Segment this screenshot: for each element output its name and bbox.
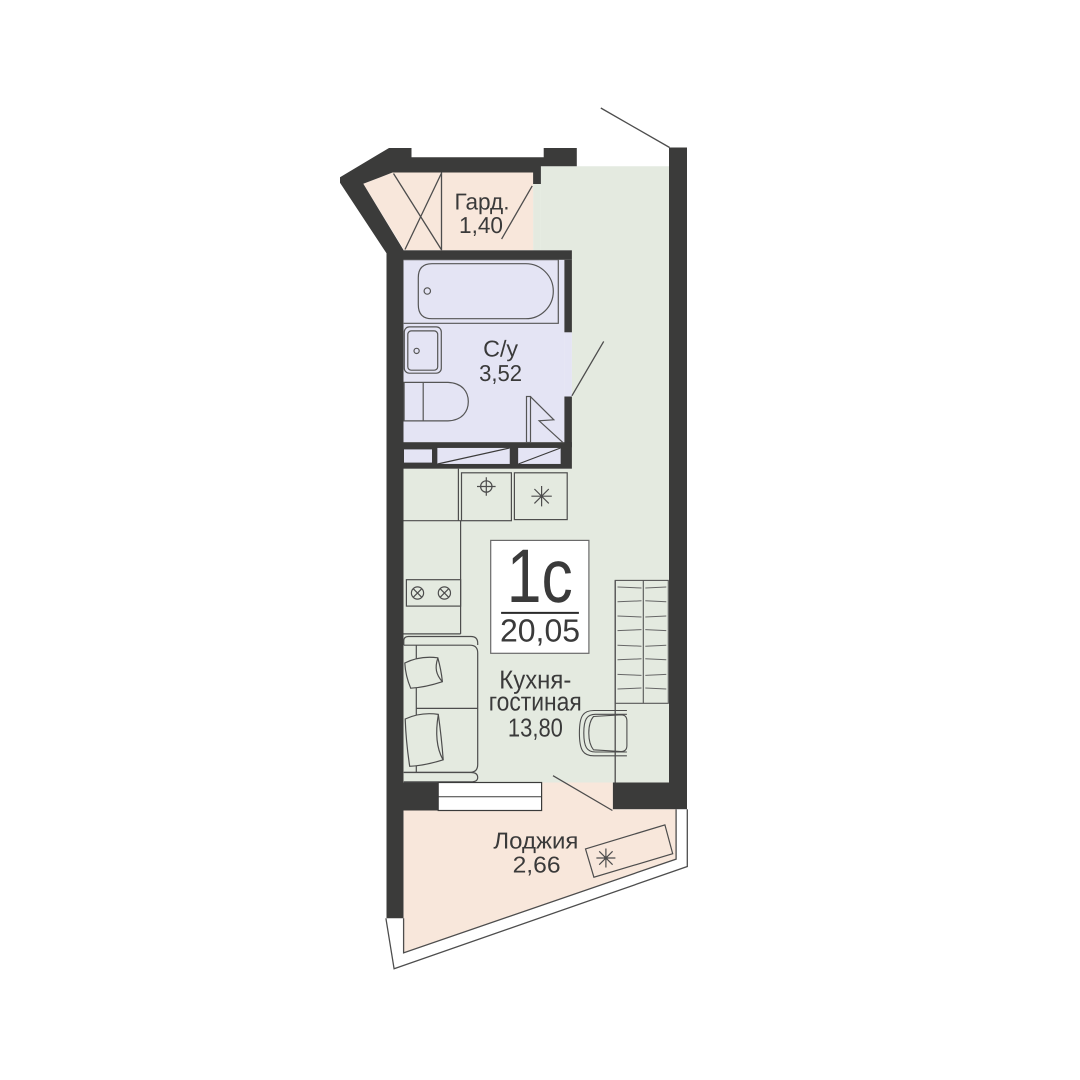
svg-text:Гард.: Гард. — [455, 189, 510, 215]
svg-text:С/у: С/у — [483, 336, 519, 362]
svg-text:13,80: 13,80 — [508, 713, 563, 743]
svg-text:1,40: 1,40 — [459, 212, 503, 238]
svg-text:1с: 1с — [507, 534, 573, 619]
svg-text:2,66: 2,66 — [513, 852, 561, 878]
svg-text:20,05: 20,05 — [500, 613, 580, 649]
svg-text:Лоджия: Лоджия — [493, 827, 578, 853]
svg-text:3,52: 3,52 — [479, 360, 522, 386]
